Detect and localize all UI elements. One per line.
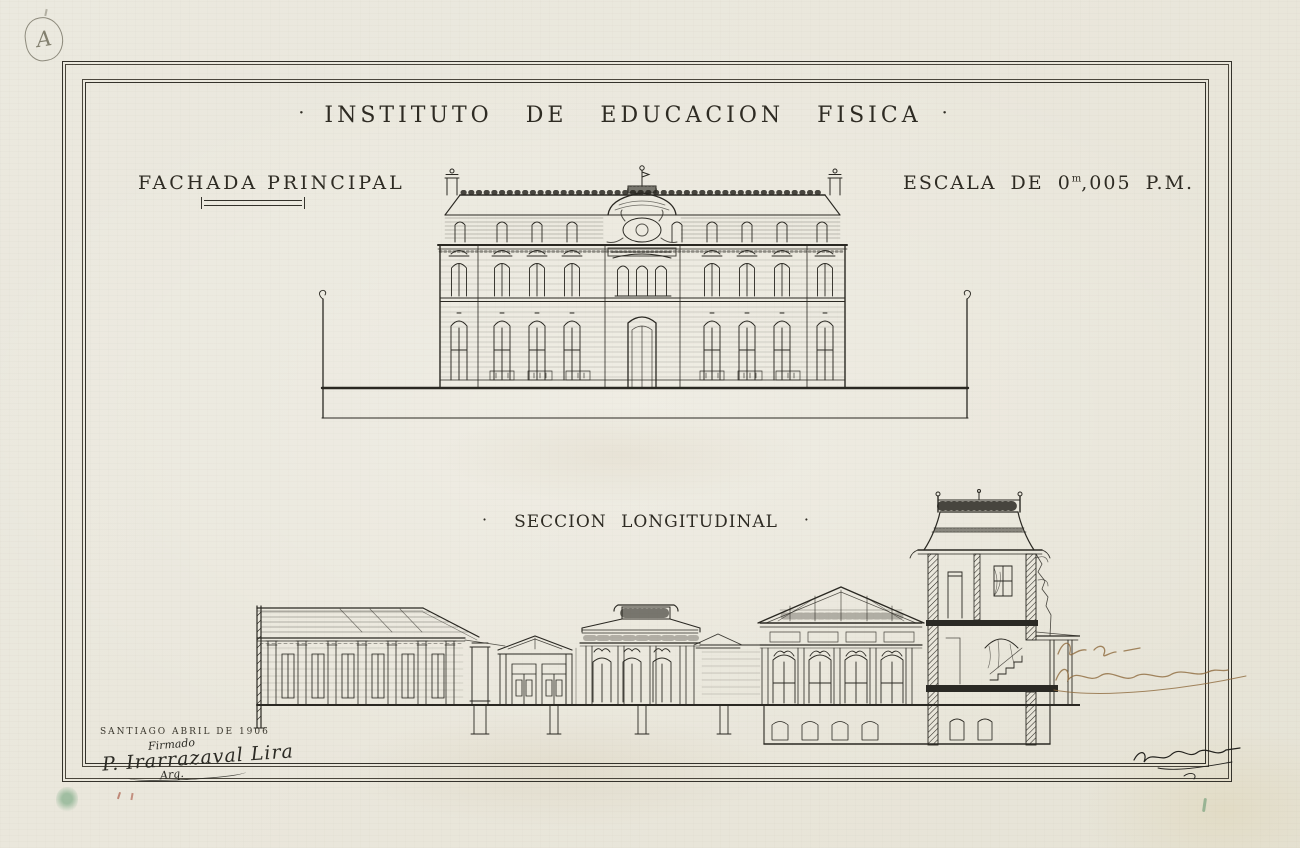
pencil-tick [44, 9, 47, 16]
section-lantern-pavilion [580, 605, 700, 705]
section-tower [910, 490, 1058, 746]
section-left-wing [257, 606, 479, 728]
section-pavilion-truss [498, 636, 576, 705]
pencil-circled-letter: A [22, 14, 66, 63]
scale-decimals: ,005 [1081, 172, 1131, 194]
sheet-title: ·INSTITUTO DE EDUCACION FISICA· [0, 103, 1246, 128]
section-ground-line [254, 705, 1080, 744]
longitudinal-section-drawing [250, 488, 1080, 773]
drawing-sheet: A ·INSTITUTO DE EDUCACION FISICA· FACHAD… [0, 0, 1300, 848]
ground-line [320, 290, 971, 418]
section-link-wall [694, 634, 762, 694]
facade-building [438, 169, 847, 388]
ground-floor-windows [440, 307, 845, 388]
scale-unit: P.M. [1146, 172, 1194, 194]
architect-title: Arq. [159, 767, 184, 782]
green-numeral-mark [1202, 798, 1207, 812]
upper-floor-windows [410, 251, 845, 299]
facade-label-underline [204, 200, 302, 206]
handwritten-sepia-note [1050, 628, 1250, 708]
city-date: SANTIAGO ABRIL DE 1906 [100, 727, 270, 737]
central-pediment-ornament [607, 166, 677, 256]
corner-mark-letter: A [35, 26, 54, 52]
title-text: INSTITUTO DE EDUCACION FISICA [324, 103, 921, 128]
scale-sup-m: m [1072, 174, 1081, 185]
scale-whole: 0 [1058, 172, 1072, 194]
title-left-dot: · [298, 102, 304, 124]
title-right-dot: · [942, 102, 948, 124]
green-stamp-mark [56, 787, 78, 813]
signature-bottom-right [1128, 738, 1248, 783]
facade-elevation-drawing [310, 158, 980, 430]
red-ink-tick [117, 792, 121, 799]
red-ink-tick [130, 793, 133, 800]
section-grand-hall [758, 587, 924, 740]
